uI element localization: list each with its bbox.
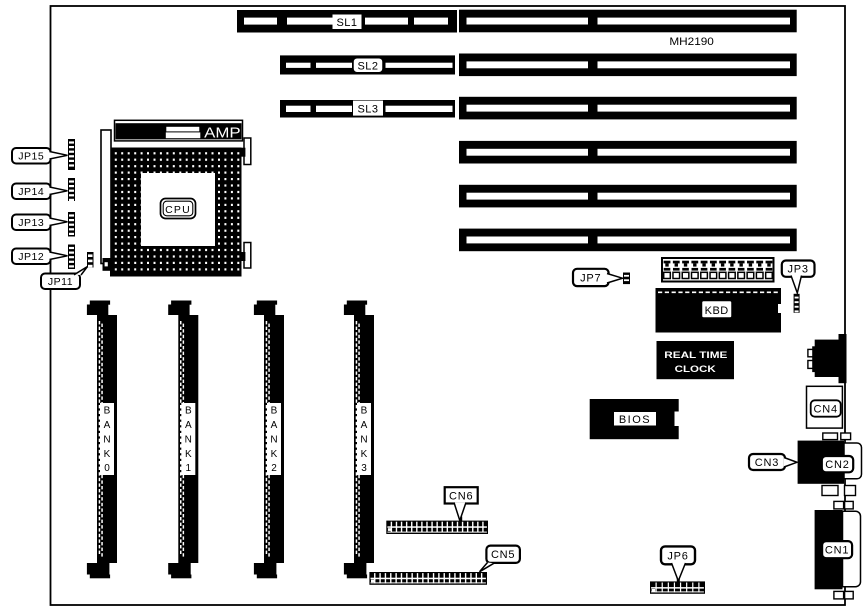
svg-text:JP13: JP13 bbox=[18, 217, 44, 229]
svg-text:A: A bbox=[271, 420, 278, 431]
svg-text:SL2: SL2 bbox=[357, 61, 378, 73]
svg-text:JP11: JP11 bbox=[48, 276, 73, 288]
svg-text:CN4: CN4 bbox=[813, 403, 837, 415]
svg-text:K: K bbox=[185, 449, 192, 460]
svg-text:JP3: JP3 bbox=[787, 264, 808, 276]
svg-text:3: 3 bbox=[361, 463, 367, 474]
svg-text:JP6: JP6 bbox=[667, 550, 688, 562]
svg-text:B: B bbox=[185, 406, 192, 417]
svg-text:JP14: JP14 bbox=[18, 186, 44, 198]
svg-text:N: N bbox=[185, 434, 192, 445]
svg-text:SL1: SL1 bbox=[336, 17, 357, 29]
svg-text:JP15: JP15 bbox=[18, 151, 44, 163]
svg-text:K: K bbox=[104, 449, 111, 460]
svg-text:MH2190: MH2190 bbox=[669, 36, 714, 48]
svg-text:2: 2 bbox=[271, 463, 277, 474]
svg-text:CN5: CN5 bbox=[491, 549, 515, 561]
svg-text:KBD: KBD bbox=[705, 305, 729, 317]
svg-text:K: K bbox=[271, 449, 278, 460]
svg-text:CPU: CPU bbox=[165, 204, 191, 216]
svg-text:B: B bbox=[271, 406, 278, 417]
svg-text:CLOCK: CLOCK bbox=[675, 364, 716, 375]
svg-text:JP12: JP12 bbox=[18, 251, 44, 263]
svg-text:CN3: CN3 bbox=[755, 457, 779, 469]
svg-text:N: N bbox=[270, 434, 277, 445]
svg-text:SL3: SL3 bbox=[357, 103, 378, 115]
svg-text:B: B bbox=[361, 406, 368, 417]
svg-text:A: A bbox=[185, 420, 192, 431]
svg-text:B: B bbox=[104, 406, 111, 417]
svg-text:K: K bbox=[361, 449, 368, 460]
svg-text:CN2: CN2 bbox=[825, 459, 849, 471]
svg-text:N: N bbox=[360, 434, 367, 445]
svg-text:1: 1 bbox=[186, 463, 192, 474]
svg-text:REAL TIME: REAL TIME bbox=[664, 350, 727, 361]
svg-text:A: A bbox=[361, 420, 368, 431]
svg-text:BIOS: BIOS bbox=[619, 414, 651, 426]
svg-text:JP7: JP7 bbox=[580, 272, 601, 284]
svg-text:A: A bbox=[104, 420, 111, 431]
svg-text:AMP: AMP bbox=[204, 126, 241, 142]
svg-text:N: N bbox=[103, 434, 110, 445]
svg-text:CN1: CN1 bbox=[825, 545, 849, 557]
svg-text:0: 0 bbox=[104, 463, 110, 474]
svg-text:CN6: CN6 bbox=[449, 490, 473, 502]
